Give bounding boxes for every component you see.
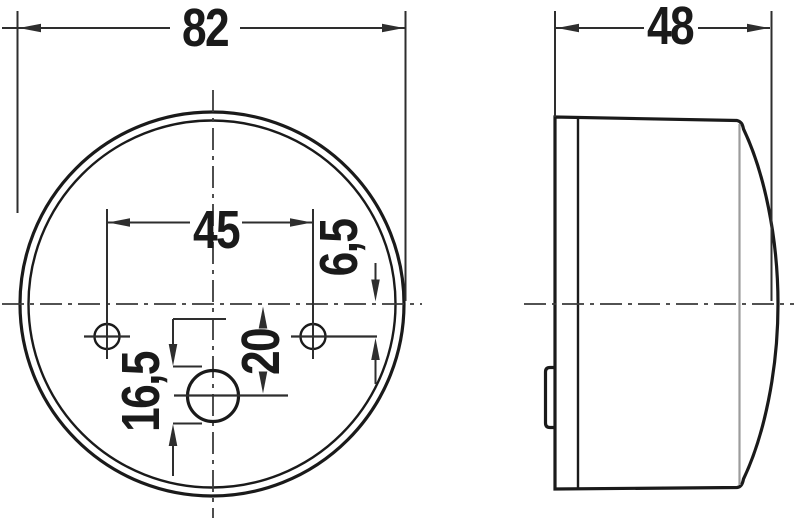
arrowhead-up [371, 338, 380, 360]
arrowhead-up [259, 307, 268, 329]
arrowhead-left [19, 24, 41, 33]
technical-drawing: 82 48 45 6,5 20 16,5 [0, 0, 800, 522]
dim-label-48: 48 [647, 0, 693, 53]
drawing-linework [0, 0, 800, 522]
arrowhead-right [382, 24, 404, 33]
dim-label-82: 82 [182, 1, 228, 55]
dim-label-20: 20 [234, 329, 288, 375]
dimension-6-5 [371, 263, 380, 384]
dim-label-45: 45 [193, 203, 239, 257]
cable-entry-hole [174, 371, 288, 422]
mounting-hole-right [291, 324, 377, 349]
housing-outline [555, 117, 778, 489]
arrowhead-left [108, 218, 130, 227]
arrowhead-left [557, 24, 579, 33]
dim-label-16-5: 16,5 [114, 352, 168, 432]
arrowhead-down [371, 280, 380, 302]
dim-label-6-5: 6,5 [312, 220, 366, 277]
front-view [2, 90, 422, 518]
arrowhead-right [747, 24, 769, 33]
side-view [524, 117, 794, 489]
dimension-16-5 [169, 319, 226, 476]
